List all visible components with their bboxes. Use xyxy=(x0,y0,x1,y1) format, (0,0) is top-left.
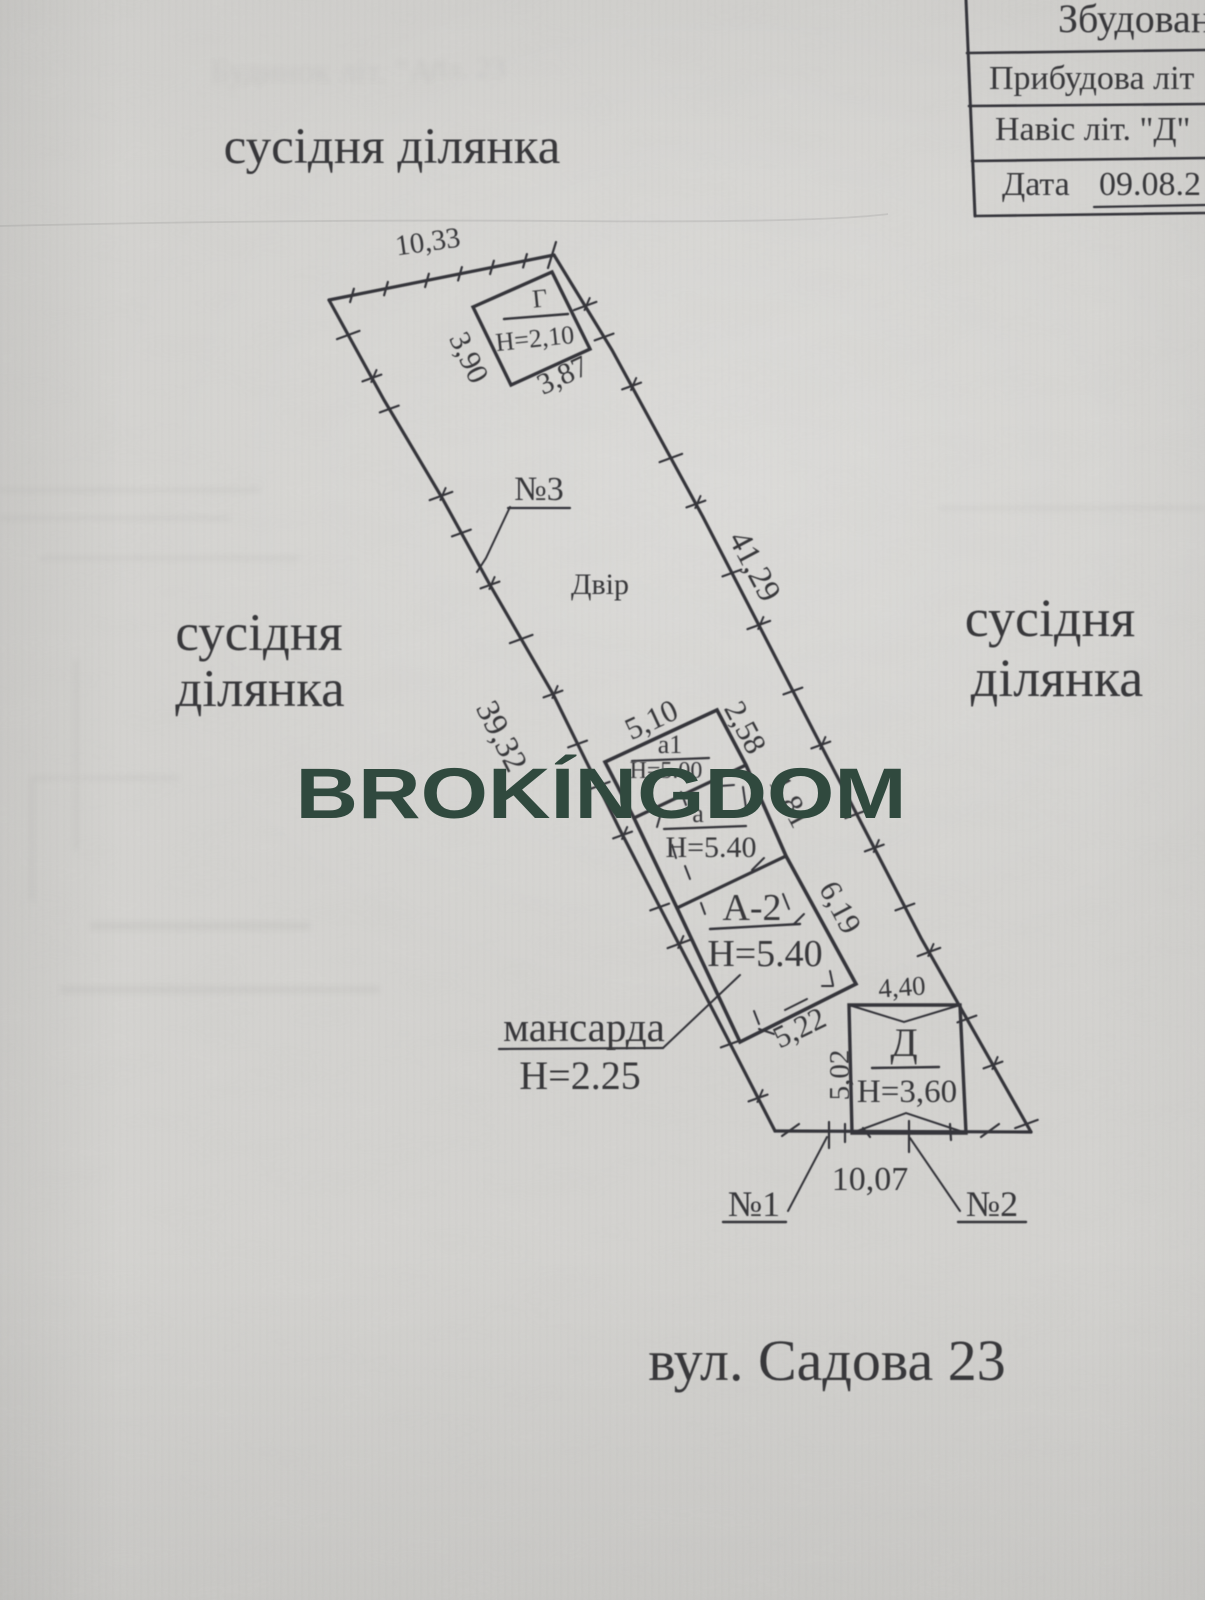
svg-text:BROKÍNGDOM: BROKÍNGDOM xyxy=(295,753,906,833)
svg-text:№3: №3 xyxy=(514,471,563,508)
svg-text:5,02: 5,02 xyxy=(824,1050,856,1101)
svg-text:сусідня: сусідня xyxy=(965,588,1135,648)
svg-text:Дата: Дата xyxy=(1002,166,1070,203)
svg-text:Г: Г xyxy=(531,283,549,313)
svg-text:№1: №1 xyxy=(728,1184,780,1224)
svg-text:H=5.40: H=5.40 xyxy=(665,831,756,864)
svg-text:А-2: А-2 xyxy=(722,887,781,929)
svg-text:Навіс літ. "Д": Навіс літ. "Д" xyxy=(995,111,1190,148)
svg-text:ділянка: ділянка xyxy=(175,660,344,718)
svg-text:Збудовано: Збудовано xyxy=(1058,0,1205,41)
svg-text:10,07: 10,07 xyxy=(832,1161,909,1198)
svg-text:сусідня ділянка: сусідня ділянка xyxy=(224,119,561,175)
svg-text:сусідня: сусідня xyxy=(175,604,342,662)
svg-text:Будинок літ. "А": Будинок літ. "А" xyxy=(210,53,447,90)
svg-text:мансарда: мансарда xyxy=(503,1004,665,1050)
svg-text:H=3,60: H=3,60 xyxy=(857,1074,957,1110)
svg-text:Прибудова літ: Прибудова літ xyxy=(989,60,1195,97)
svg-text:09.08.2: 09.08.2 xyxy=(1099,166,1201,203)
svg-text:Д: Д xyxy=(890,1020,917,1065)
svg-text:№2: №2 xyxy=(966,1184,1018,1224)
svg-text:4,40: 4,40 xyxy=(877,970,926,1003)
svg-text:H=2.25: H=2.25 xyxy=(519,1053,640,1098)
svg-text:H=5.40: H=5.40 xyxy=(707,933,822,975)
svg-text:вул. Садова 23: вул. Садова 23 xyxy=(648,1328,1006,1393)
svg-text:Двір: Двір xyxy=(571,568,629,601)
svg-text:ділянка: ділянка xyxy=(971,648,1144,708)
svg-text:пл. 23: пл. 23 xyxy=(430,52,506,85)
